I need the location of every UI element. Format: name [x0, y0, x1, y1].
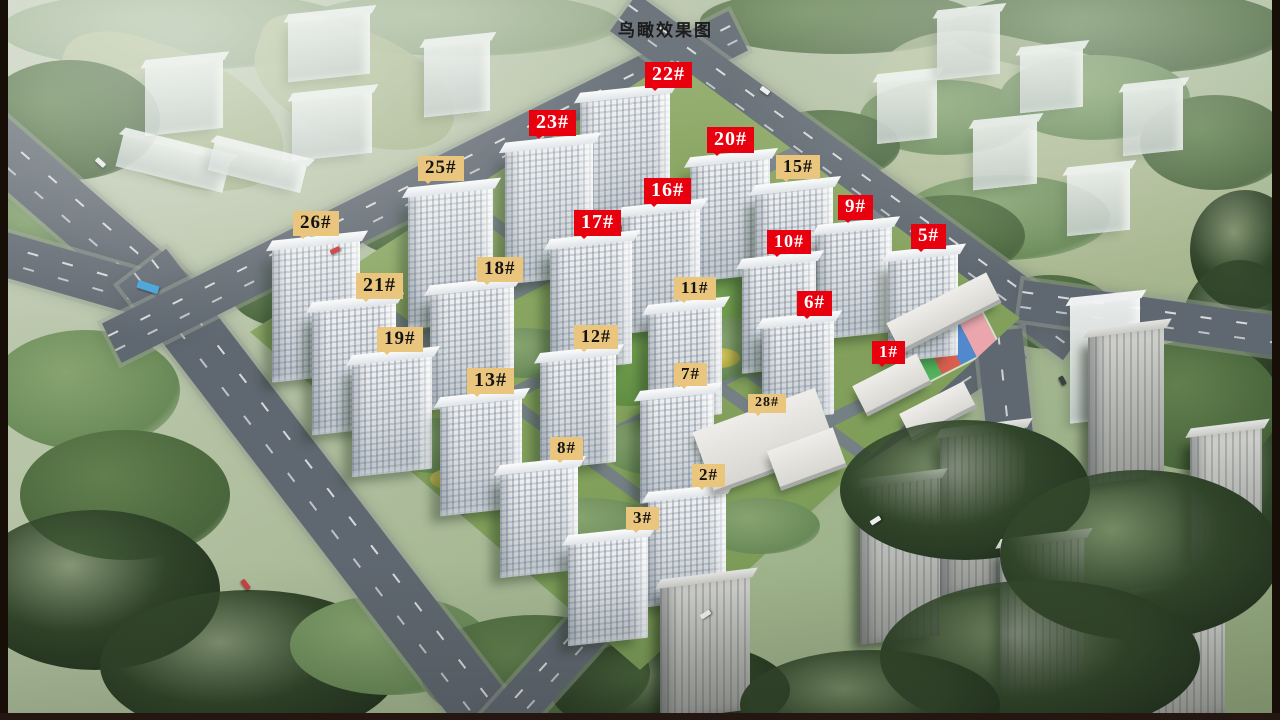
letterbox-right: [1272, 0, 1280, 720]
foreground-tower: [1088, 325, 1164, 484]
aerial-render: 22#23#20#25#15#16#9#17#26#5#10#18#21#11#…: [0, 0, 1280, 720]
building-marker-9: 9#: [838, 195, 873, 220]
residential-tower: [500, 464, 578, 578]
building-marker-1: 1#: [872, 341, 905, 364]
residential-tower: [352, 354, 432, 477]
background-tower: [424, 39, 490, 118]
building-marker-2: 2#: [692, 464, 725, 487]
building-marker-11: 11#: [674, 277, 716, 300]
building-marker-10: 10#: [767, 230, 811, 254]
background-tower: [292, 91, 372, 161]
building-marker-6: 6#: [797, 291, 832, 316]
background-tower: [288, 12, 370, 83]
building-marker-7: 7#: [674, 363, 707, 386]
building-marker-21: 21#: [356, 273, 403, 299]
building-marker-16: 16#: [644, 178, 691, 204]
background-tower: [1123, 84, 1183, 156]
building-marker-13: 13#: [467, 368, 514, 394]
letterbox-left: [0, 0, 8, 720]
building-marker-18: 18#: [477, 257, 523, 282]
foreground-tower: [660, 574, 750, 720]
residential-tower: [568, 534, 648, 646]
page-title: 鸟瞰效果图: [618, 16, 713, 41]
background-tower: [973, 120, 1037, 191]
background-tower: [145, 58, 223, 136]
letterbox-bottom: [0, 713, 1280, 720]
background-tower: [937, 10, 1000, 81]
building-marker-25: 25#: [418, 156, 464, 181]
background-tower: [1067, 167, 1130, 237]
vehicle: [1058, 375, 1067, 385]
background-tower: [1020, 47, 1083, 114]
building-marker-23: 23#: [529, 110, 576, 136]
building-marker-26: 26#: [293, 211, 339, 236]
building-marker-8: 8#: [550, 437, 583, 460]
building-marker-3: 3#: [626, 507, 659, 530]
building-marker-12: 12#: [574, 325, 618, 349]
building-marker-22: 22#: [645, 62, 692, 88]
building-marker-5: 5#: [911, 224, 946, 249]
building-marker-15: 15#: [776, 155, 820, 179]
building-marker-17: 17#: [574, 210, 621, 236]
building-marker-28: 28#: [748, 394, 786, 413]
building-marker-19: 19#: [377, 327, 423, 352]
background-tower: [877, 74, 937, 144]
vehicle: [240, 579, 251, 591]
building-marker-20: 20#: [707, 127, 754, 153]
